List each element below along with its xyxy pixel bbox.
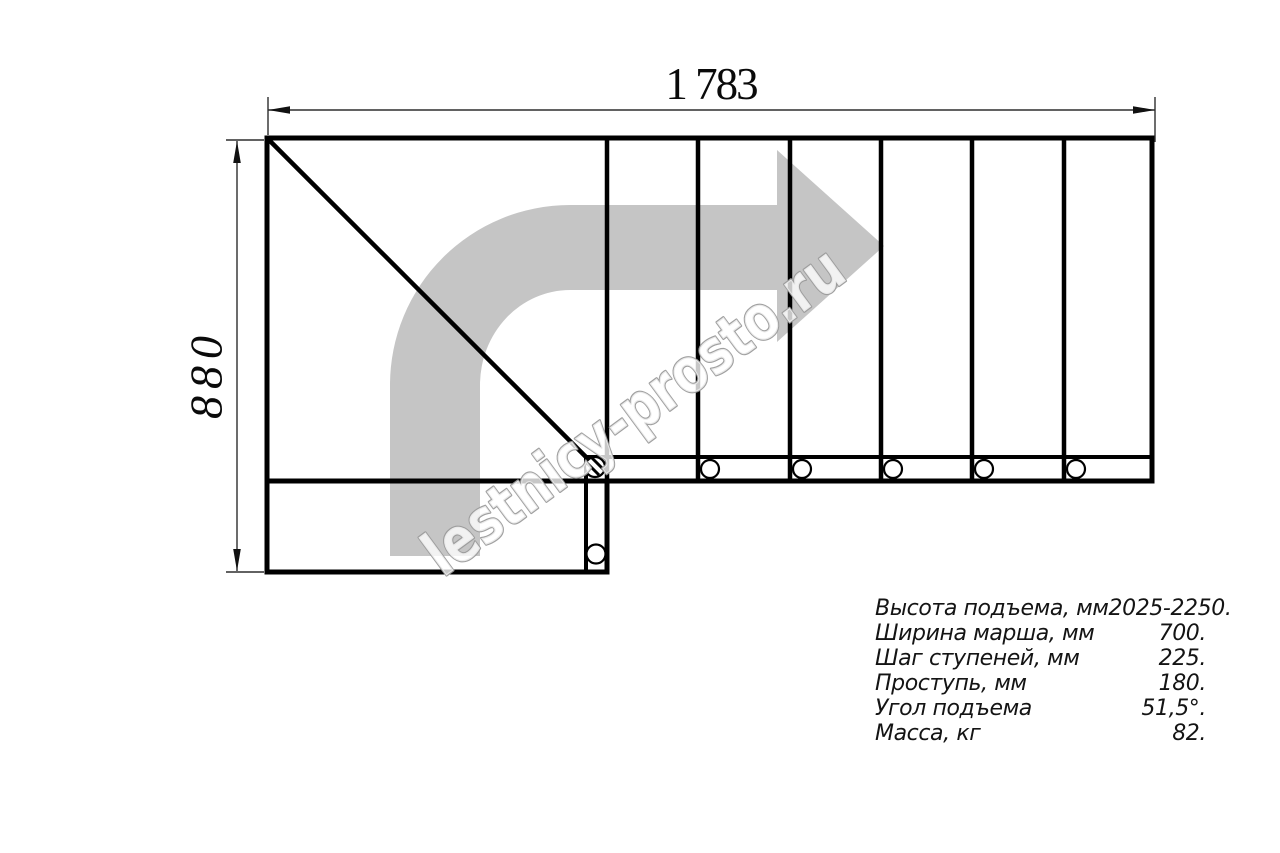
spec-row-tread: Проступь, мм 180. [875, 671, 1206, 696]
spec-label: Высота подъема, мм [875, 596, 1109, 621]
dimension-arrowhead [233, 141, 241, 163]
spec-label: Шаг ступеней, мм [875, 646, 1079, 671]
fastener-circle [884, 460, 902, 478]
fastener-circles [585, 457, 1085, 564]
spec-value: 2025-2250. [1109, 596, 1232, 621]
spec-label: Проступь, мм [875, 671, 1027, 696]
spec-value: 51,5°. [1141, 696, 1206, 721]
spec-table: Высота подъема, мм 2025-2250. Ширина мар… [875, 596, 1206, 746]
width-dimension-label: 1 783 [665, 59, 757, 109]
fastener-circle [793, 460, 811, 478]
spec-label: Угол подъема [875, 696, 1032, 721]
spec-label: Масса, кг [875, 721, 980, 746]
spec-value: 700. [1159, 621, 1206, 646]
spec-row-mass: Масса, кг 82. [875, 721, 1206, 746]
fastener-circle [587, 545, 606, 564]
height-dimension-label: 880 [181, 329, 232, 419]
spec-label: Ширина марша, мм [875, 621, 1094, 646]
staircase-plan-page: 1 783 880 lestnicy-prosto.ru Высота подъ… [0, 0, 1280, 853]
spec-row-flight-width: Ширина марша, мм 700. [875, 621, 1206, 646]
dimension-arrowhead [1133, 106, 1155, 114]
spec-value: 82. [1172, 721, 1206, 746]
spec-row-height: Высота подъема, мм 2025-2250. [875, 596, 1206, 621]
spec-value: 180. [1159, 671, 1206, 696]
fastener-circle [975, 460, 993, 478]
dimension-arrowhead [233, 549, 241, 571]
spec-row-step-pitch: Шаг ступеней, мм 225. [875, 646, 1206, 671]
fastener-circle [701, 460, 719, 478]
dimension-arrowhead [268, 106, 290, 114]
spec-row-angle: Угол подъема 51,5°. [875, 696, 1206, 721]
height-dimension [226, 140, 264, 572]
spec-value: 225. [1159, 646, 1206, 671]
fastener-circle [1067, 460, 1085, 478]
